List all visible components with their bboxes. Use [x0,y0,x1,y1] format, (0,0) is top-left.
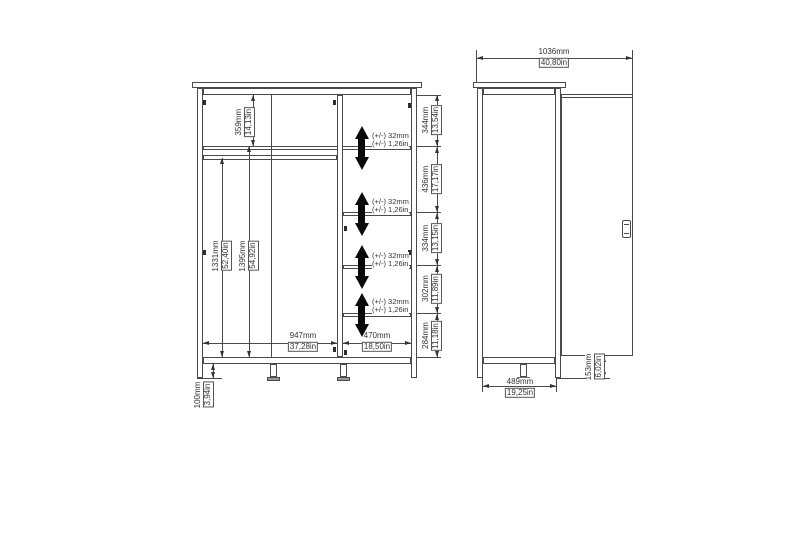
door-top-edge [561,97,633,98]
bottom-panel [483,357,555,364]
extension-line [482,368,483,392]
dim-mm: 1036mm [537,48,570,56]
dim-mm: 489mm [506,378,535,386]
dim-in: 40,80in [539,58,569,68]
foot-stem [520,364,527,377]
arrowhead-icon [483,384,489,388]
handle-detail [624,224,629,225]
wardrobe-technical-drawing: 359mm 14,13in 1395mm 54,92in 1331mm 52,4… [0,0,800,533]
dim-in: 6,02in [594,354,605,380]
dim-in: 19,25in [505,388,535,398]
handle-detail [624,233,629,234]
side-view: 1036mm 40,80in 153mm 6,02in 489mm 19, [0,0,800,533]
top-panel [483,88,555,95]
door-handle [622,220,631,238]
front-panel-edge [477,88,483,378]
dim-mm: 153mm [585,354,594,381]
extension-line [632,50,633,94]
arrowhead-icon [626,56,632,60]
arrowhead-icon [477,56,483,60]
dim-label-153: 153mm 6,02in [585,354,605,381]
arrowhead-icon [550,384,556,388]
extension-line [556,378,557,392]
